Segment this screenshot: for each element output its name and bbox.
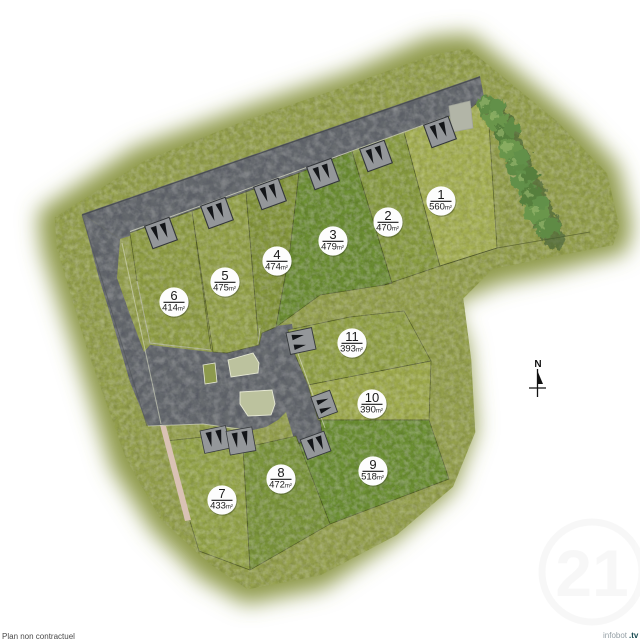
svg-text:N: N — [534, 359, 541, 370]
svg-text:Plan non contractuel: Plan non contractuel — [2, 632, 75, 640]
svg-text:.tv: .tv — [629, 631, 639, 640]
svg-text:infobot: infobot — [603, 631, 628, 640]
svg-text:21: 21 — [555, 536, 628, 610]
